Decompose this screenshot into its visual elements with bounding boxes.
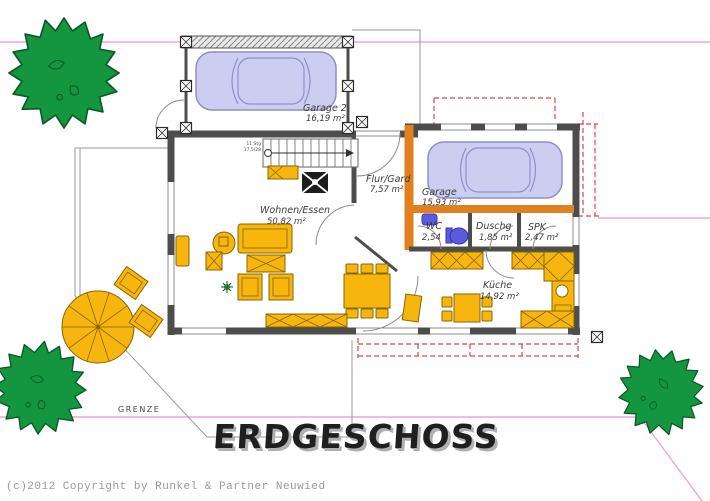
label-duschg: Duschg: [476, 221, 512, 232]
label-garage2: Garage 2: [303, 103, 347, 114]
area-flur: 7,57 m²: [370, 185, 404, 195]
copyright-text: (c)2012 Copyright by Runkel & Partner Ne…: [6, 481, 326, 493]
area-spk: 2,47 m²: [525, 233, 559, 243]
label-wohnen: Wohnen/Essen: [260, 205, 330, 216]
tree-top-left: [9, 18, 119, 128]
floor-plan-page: 11 Stg 17,5/28: [0, 0, 710, 501]
area-garage2: 16,19 m²: [306, 114, 345, 124]
car-garage2: [196, 52, 336, 110]
fireplace-symbol: [302, 172, 328, 193]
stairs-note-line2: 17,5/28: [244, 147, 261, 153]
label-wc: WC: [426, 221, 442, 232]
label-flur: Flur/Gard: [366, 174, 411, 185]
area-duschg: 1,85 m²: [479, 233, 513, 243]
label-kueche: Küche: [483, 280, 512, 291]
garden-chair-2: [129, 305, 163, 338]
stairs-note-line1: 11 Stg: [246, 141, 261, 147]
boundary-label: GRENZE: [118, 405, 160, 414]
label-spk: SPK: [528, 222, 547, 233]
page-title: ERDGESCHOSS: [212, 417, 500, 456]
garden-chair-1: [114, 267, 148, 300]
toilet-icon: [446, 228, 468, 244]
staircase: 11 Stg 17,5/28: [244, 139, 358, 167]
area-wohnen: 50,82 m²: [267, 217, 306, 227]
plant-symbol: [221, 281, 233, 293]
area-wc: 2,54: [422, 233, 441, 243]
parasol-symbol: [62, 291, 134, 363]
label-garage: Garage: [422, 187, 457, 198]
area-garage: 15,93 m²: [422, 198, 461, 208]
tree-bottom-right: [603, 334, 710, 450]
area-kueche: 14,92 m²: [480, 292, 519, 302]
